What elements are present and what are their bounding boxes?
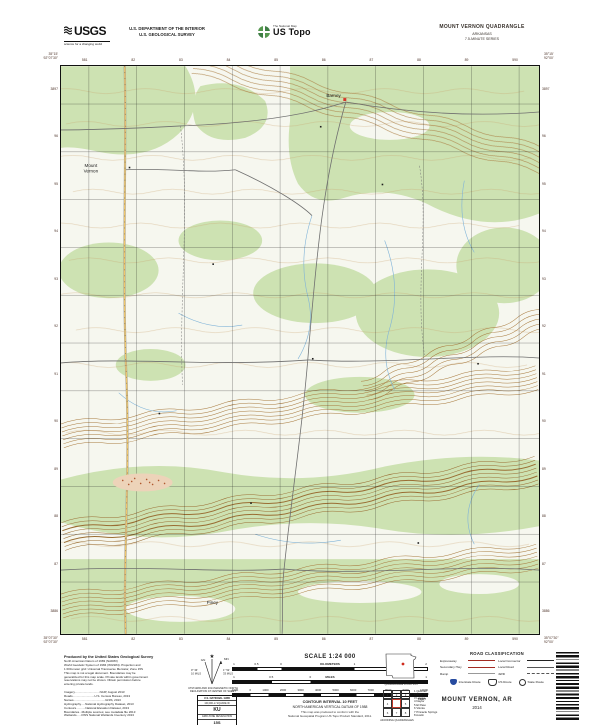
barcode <box>556 652 579 720</box>
topo-map-canvas: Barney Mount Vernon Piney <box>61 66 539 634</box>
map-label-mount-vernon-1: Mount <box>85 163 98 168</box>
map-label-mount-vernon-2: Vernon <box>84 169 99 174</box>
utm-northing-labels-left: 3897969594939291908988873886 <box>44 65 58 635</box>
legend-ramp-line <box>468 673 495 674</box>
adjoining-quadrangles-caption: ADJOINING QUADRANGLES <box>372 719 422 722</box>
state-locator-map <box>383 652 419 682</box>
legend-expressway-line <box>468 660 495 661</box>
us-route-shield-icon <box>488 679 497 687</box>
declination-diagram: ★ GN MN 0° 33' 10 MILS 1° 52' 33 MILS <box>190 652 236 686</box>
map-area: Barney Mount Vernon Piney <box>60 65 540 635</box>
legend-local-connector-label: Local Connector <box>498 659 524 663</box>
legend-local-road-label: Local Road <box>498 665 524 669</box>
usng-box: U.S. NATIONAL GRID 100,000-m SQUARE ID K… <box>197 695 237 725</box>
ustopo-logo: The National Map US Topo <box>258 25 311 38</box>
usng-square-id: KU <box>198 705 236 713</box>
road-classification-legend: ROAD CLASSIFICATION Expressway Local Con… <box>440 651 554 686</box>
sheet-year: 2014 <box>412 705 542 710</box>
mn-declination-value: 1° 52' <box>223 668 230 672</box>
interstate-route-label: Interstate Route <box>459 680 481 684</box>
usgs-topo-sheet: USGS science for a changing world U.S. D… <box>0 0 600 725</box>
usgs-wave-icon <box>64 22 72 40</box>
credits-lines: North American Datum of 1983 (NAD83)Worl… <box>64 660 194 718</box>
usgs-logo: USGS science for a changing world <box>64 22 110 46</box>
map-label-piney: Piney <box>207 600 219 605</box>
usgs-logo-tagline: science for a changing world <box>64 41 110 46</box>
gn-declination-value: 0° 33' <box>191 668 198 672</box>
corner-coords-top-right: 35°15'92°00' <box>544 52 584 61</box>
sheet-name: MOUNT VERNON, AR <box>412 697 542 703</box>
utm-easting-labels-bottom: 5818283848586878889590 <box>60 637 540 641</box>
usng-zone: 15S <box>198 719 236 725</box>
quarry-area <box>113 473 173 491</box>
grid-north-label: GN <box>201 658 206 662</box>
legend-4wd-line <box>527 673 554 674</box>
legend-expressway-label: Expressway <box>440 659 465 663</box>
corner-coords-bottom-left: 35°07'30"92°07'30" <box>20 636 58 645</box>
quadrangle-title-block: MOUNT VERNON QUADRANGLE ARKANSAS 7.5-MIN… <box>418 24 546 41</box>
arkansas-outline <box>386 654 416 678</box>
legend-4wd-label: 4WD <box>498 672 524 676</box>
state-locator-caption: QUADRANGLE LOCATION <box>375 683 427 686</box>
usng-zone-label: GRID ZONE DESIGNATION <box>198 714 236 719</box>
sheet-name-block: MOUNT VERNON, AR 2014 <box>412 697 542 710</box>
barney-town-marker <box>343 98 346 101</box>
legend-ramp-label: Ramp <box>440 672 465 676</box>
legend-local-connector-line <box>527 660 554 661</box>
magnetic-north-arrow-icon <box>219 661 222 664</box>
quad-location-dot <box>402 663 405 666</box>
quadrangle-state: ARKANSAS <box>418 32 546 36</box>
department-block: U.S. DEPARTMENT OF THE INTERIOR U.S. GEO… <box>112 26 222 39</box>
true-north-star-icon: ★ <box>210 653 215 660</box>
adjoining-quadrangles-grid: 12345678 <box>383 690 410 717</box>
legend-local-road-line <box>527 667 554 668</box>
road-classification-title: ROAD CLASSIFICATION <box>440 651 554 656</box>
utm-northing-labels-right: 3897969594939291908988873886 <box>542 65 558 635</box>
corner-coords-bottom-right: 35°07'30"92°00' <box>544 636 584 645</box>
interstate-shield-icon <box>450 679 457 685</box>
magnetic-north-label: MN <box>224 657 229 661</box>
ustopo-product-label: US Topo <box>273 28 311 38</box>
state-route-label: State Route <box>528 680 544 684</box>
quadrangle-title: MOUNT VERNON QUADRANGLE <box>418 24 546 30</box>
department-line2: U.S. GEOLOGICAL SURVEY <box>112 32 222 38</box>
state-route-circle-icon <box>519 679 527 687</box>
map-label-barney: Barney <box>326 93 341 98</box>
legend-secondary-hwy-label: Secondary Hwy <box>440 665 465 669</box>
utm-easting-labels-top: 5818283848586878889590 <box>60 58 540 62</box>
corner-coords-top-left: 35°15'92°07'30" <box>20 52 58 61</box>
quadrangle-series: 7.5-MINUTE SERIES <box>418 37 546 41</box>
production-credits: Produced by the United States Geological… <box>64 655 194 718</box>
ustopo-globe-icon <box>258 26 270 38</box>
us-route-label: US Route <box>498 680 511 684</box>
credits-heading: Produced by the United States Geological… <box>64 655 194 659</box>
legend-secondary-hwy-line <box>468 667 495 668</box>
usgs-logo-text: USGS <box>74 24 106 38</box>
gn-declination-mils: 10 MILS <box>191 672 201 676</box>
